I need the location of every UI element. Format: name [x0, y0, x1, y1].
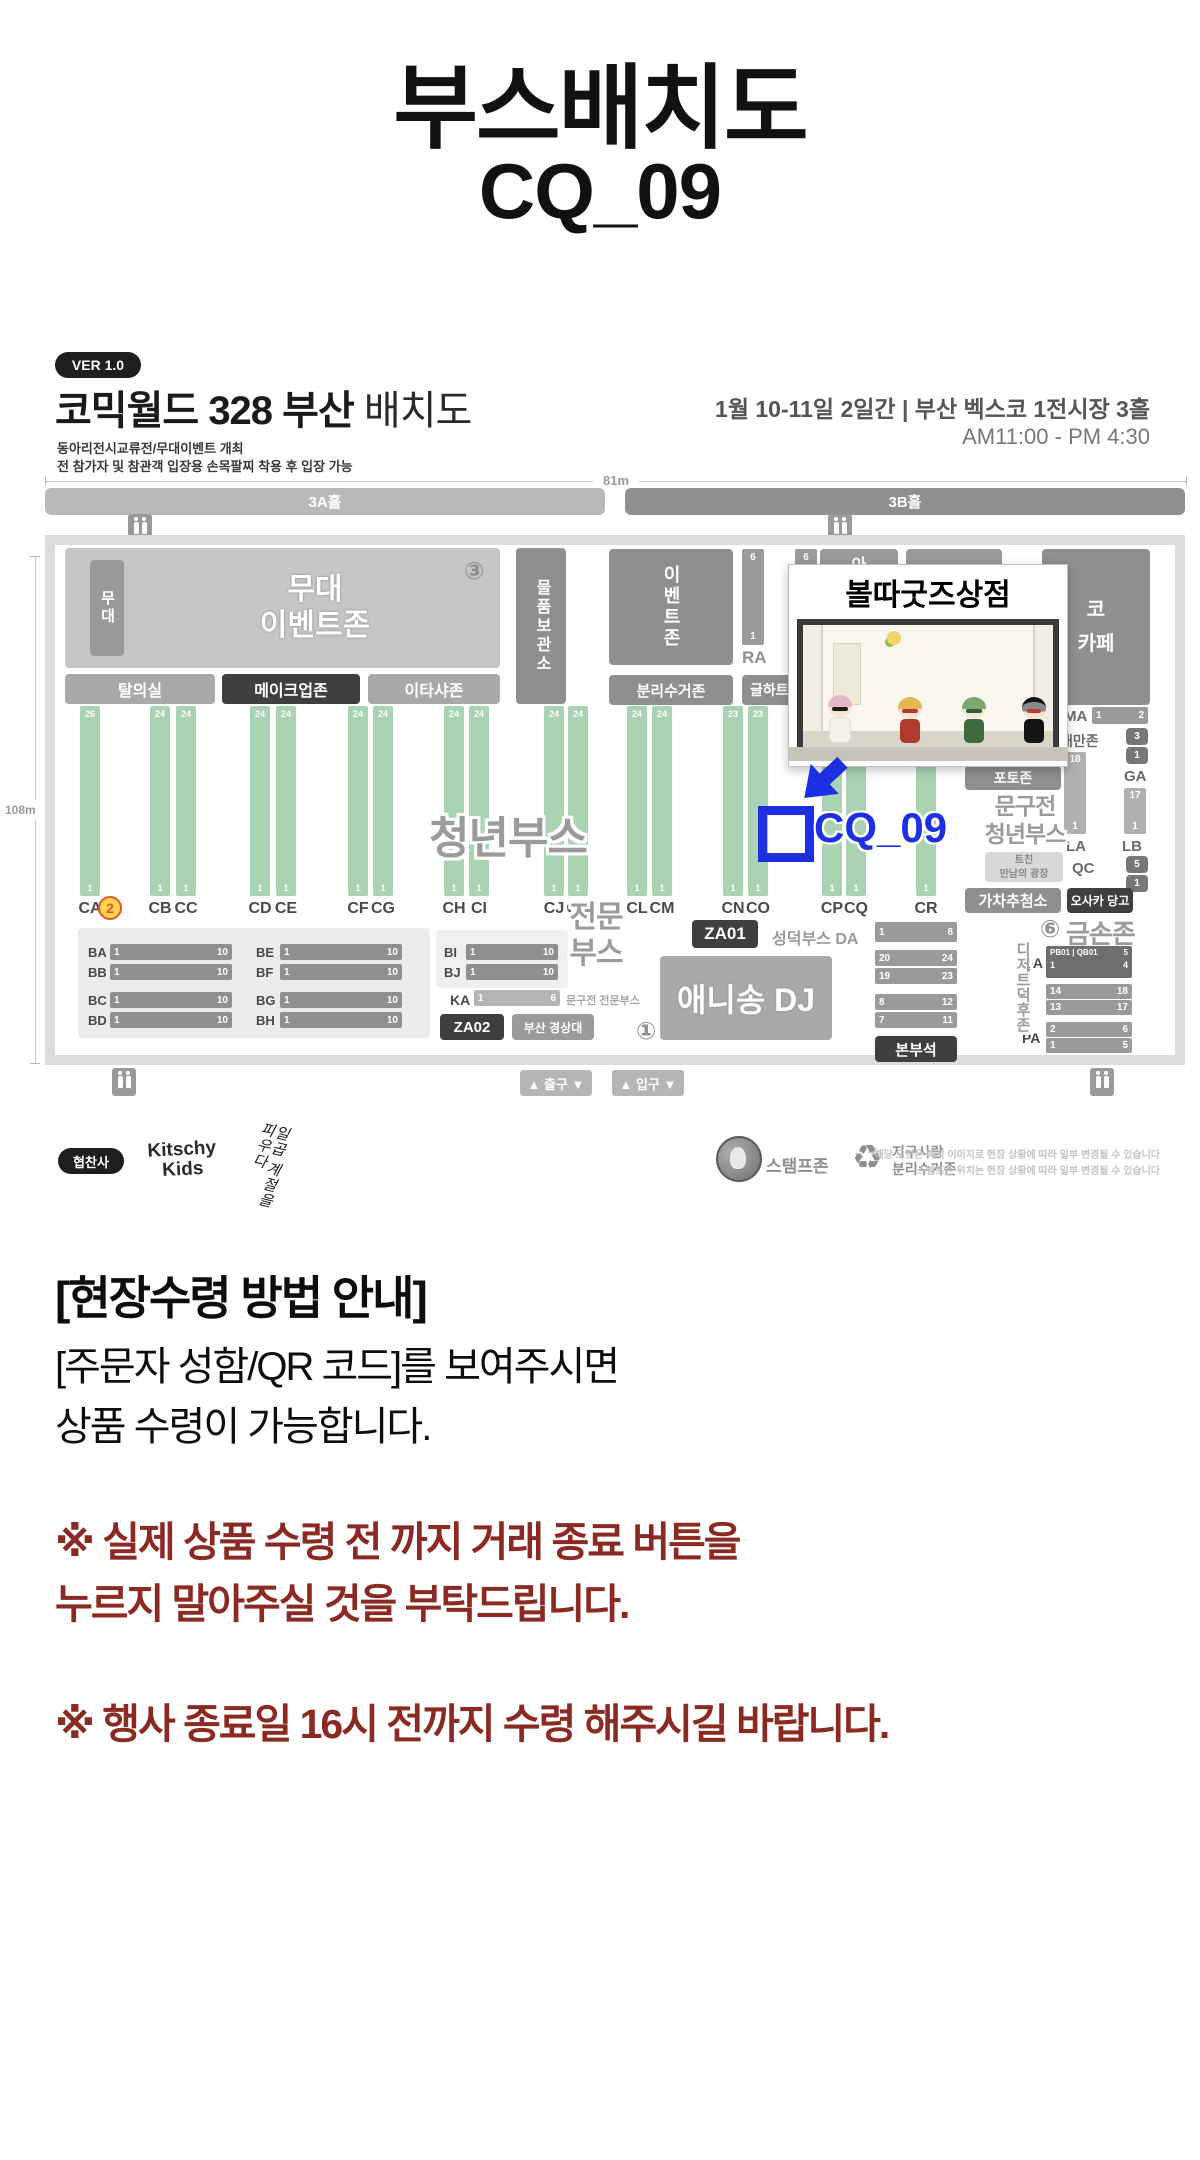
b-row-label-bb: BB	[88, 965, 107, 980]
recycle-zone-bar: 분리수거존	[609, 675, 733, 705]
pickup-guide-line1: [주문자 성함/QR 코드]를 보여주시면	[55, 1334, 618, 1392]
booth-column-ch: 241	[444, 706, 464, 896]
booth-column-cn: 231	[723, 706, 743, 896]
hq-box: 본부석	[875, 1036, 957, 1062]
stamp-zone-label: 스탬프존	[766, 1152, 829, 1177]
da-row-3: 812	[875, 994, 957, 1010]
taiwan-box-3: 3	[1126, 728, 1148, 745]
b-row-label-ba: BA	[88, 945, 107, 960]
qc-label: QC	[1072, 860, 1095, 877]
b-row-bar-bj: 110	[466, 964, 558, 980]
shop-card: 볼따굿즈상점	[788, 564, 1068, 767]
warning-1-line1: ※ 실제 상품 수령 전 까지 거래 종료 버튼을	[55, 1508, 740, 1568]
qc-box-5: 5	[1126, 856, 1148, 873]
floating-chibi-sprite	[887, 631, 901, 645]
booth-column-label-cr: CR	[908, 900, 944, 918]
pickup-guide-line2: 상품 수령이 가능합니다.	[55, 1394, 430, 1452]
chibi-character-black-hat	[1019, 697, 1049, 743]
stationery-youth-label: 문구전청년부스	[960, 792, 1090, 848]
booth-column-cj: 241	[544, 706, 564, 896]
booth-column-label-co: CO	[740, 900, 776, 918]
warning-2: ※ 행사 종료일 16시 전까지 수령 해주시길 바랍니다.	[55, 1690, 888, 1750]
ka-label: KA	[450, 992, 470, 1008]
restroom-icon	[1090, 1068, 1114, 1096]
friend-meetup-box: 트친만남의 광장	[985, 852, 1063, 882]
b-row-label-be: BE	[256, 945, 274, 960]
itasha-zone: 이타샤존	[368, 674, 500, 704]
da-row-4: 711	[875, 1012, 957, 1028]
b-row-label-bf: BF	[256, 965, 273, 980]
booth-column-cm: 241	[652, 706, 672, 896]
booth-column-cg: 241	[373, 706, 393, 896]
za02-box: ZA02	[440, 1014, 504, 1040]
lb-column: 171	[1124, 788, 1146, 834]
booth-column-co: 231	[748, 706, 768, 896]
b-row-bar-bc: 110	[110, 992, 232, 1008]
ra-label: RA	[742, 648, 767, 668]
booth-column-cb: 241	[150, 706, 170, 896]
sponsor-badge: 협찬사	[58, 1148, 124, 1174]
booth-column-ce: 241	[276, 706, 296, 896]
ka-desc: 문구전 전문부스	[566, 992, 640, 1008]
ka-bar: 16	[474, 990, 560, 1006]
busan-univ-box: 부산 경상대	[512, 1014, 594, 1040]
lb-label: LB	[1122, 838, 1142, 855]
da-bar: 18	[875, 922, 957, 942]
booth-column-label-cq: CQ	[838, 900, 874, 918]
circled-number-2: 2	[98, 896, 122, 920]
makeup-zone: 메이크업존	[222, 674, 360, 704]
chibi-character-green	[959, 697, 989, 743]
booth-column-label-cm: CM	[644, 900, 680, 918]
b-row-label-bh: BH	[256, 1013, 275, 1028]
shop-card-title: 볼따굿즈상점	[789, 565, 1067, 619]
da-row-1: 2024	[875, 950, 957, 966]
pickup-guide-header: [현장수령 방법 안내]	[55, 1262, 426, 1328]
stage-box: 무대	[90, 560, 124, 656]
ma-bar: 12	[1092, 707, 1148, 724]
b-row-label-bj: BJ	[444, 965, 461, 980]
taiwan-box-1: 1	[1126, 747, 1148, 764]
stamp-icon	[716, 1136, 762, 1182]
booth-column-ck: 241	[568, 706, 588, 896]
booth-column-label-ce: CE	[268, 900, 304, 918]
b-row-label-bg: BG	[256, 993, 276, 1008]
za01-box: ZA01	[692, 920, 758, 948]
circled-number-6: ⑥	[1040, 918, 1060, 942]
stage-event-zone-label: 무대이벤트존	[150, 572, 480, 644]
b-row-bar-bf: 110	[280, 964, 402, 980]
b-row-bar-bd: 110	[110, 1012, 232, 1028]
exit-gate: ▲ 출구 ▼	[520, 1070, 592, 1096]
ra-column-1: 61	[742, 549, 764, 645]
b-row-bar-ba: 110	[110, 944, 232, 960]
b-row-label-bi: BI	[444, 945, 457, 960]
booth-column-ci: 241	[469, 706, 489, 896]
cq09-booth-text: CQ_09	[814, 804, 947, 852]
circled-number-3: ③	[464, 560, 484, 584]
booth-column-ca: 261	[80, 706, 100, 896]
pro-booth-label: 전문부스	[556, 900, 636, 972]
b-row-label-bd: BD	[88, 1013, 107, 1028]
mid-bar-1: 1418	[1046, 984, 1132, 999]
cq09-booth-marker	[758, 806, 814, 862]
chibi-character-pink	[825, 695, 855, 743]
chibi-character-blonde	[895, 697, 925, 743]
booth-column-cc: 241	[176, 706, 196, 896]
b-row-bar-bh: 110	[280, 1012, 402, 1028]
b-row-bar-bg: 110	[280, 992, 402, 1008]
youth-booth-label: 청년부스	[408, 802, 608, 866]
b-row-bar-be: 110	[280, 944, 402, 960]
storage-zone: 물품보관소	[516, 548, 566, 704]
kitschy-kids-logo: KitschyKids	[147, 1138, 218, 1182]
warning-1-line2: 누르지 말아주실 것을 부탁드립니다.	[55, 1570, 628, 1630]
booth-column-label-cg: CG	[365, 900, 401, 918]
map-disclaimer: *해당 도면은 예시 이미지로 현장 상황에 따라 일부 변경될 수 있습니다스…	[871, 1148, 1160, 1180]
booth-column-cl: 241	[627, 706, 647, 896]
da-row-2: 1923	[875, 968, 957, 984]
photo-zone: 포토존	[965, 766, 1061, 790]
event-zone-2: 이벤트존	[609, 549, 733, 665]
mid-bar-2: 1317	[1046, 1000, 1132, 1015]
restroom-icon	[112, 1068, 136, 1096]
calligraphy-logo: 일곱 계절을 피우다	[236, 1120, 289, 1224]
anisong-dj-zone: 애니송 DJ	[660, 956, 832, 1040]
booth-column-label-ci: CI	[461, 900, 497, 918]
gacha-zone: 가차추첨소	[965, 888, 1061, 913]
entrance-gate: ▲ 입구 ▼	[612, 1070, 684, 1096]
seongdeok-label: 성덕부스 DA	[772, 925, 858, 949]
shop-illustration	[797, 619, 1059, 747]
booth-column-cf: 241	[348, 706, 368, 896]
dressing-room-zone: 탈의실	[65, 674, 215, 704]
osaka-dango-zone: 오사카 당고	[1067, 888, 1133, 913]
b-row-bar-bb: 110	[110, 964, 232, 980]
qa-bar: PB01 | QB015 14	[1046, 946, 1132, 978]
b-row-bar-bi: 110	[466, 944, 558, 960]
map-body: 무대 무대이벤트존 ③ 탈의실 메이크업존 이타샤존 물품보관소 이벤트존 분리…	[0, 0, 1200, 1100]
pa-bar-2: 15	[1046, 1038, 1132, 1053]
booth-column-label-cc: CC	[168, 900, 204, 918]
ga-label: GA	[1124, 768, 1147, 785]
b-row-label-bc: BC	[88, 993, 107, 1008]
circled-number-1: ①	[636, 1020, 656, 1044]
pa-bar-1: 26	[1046, 1022, 1132, 1037]
booth-column-cd: 241	[250, 706, 270, 896]
dessert-zone-label: 디저트덕후존	[1012, 942, 1033, 1046]
